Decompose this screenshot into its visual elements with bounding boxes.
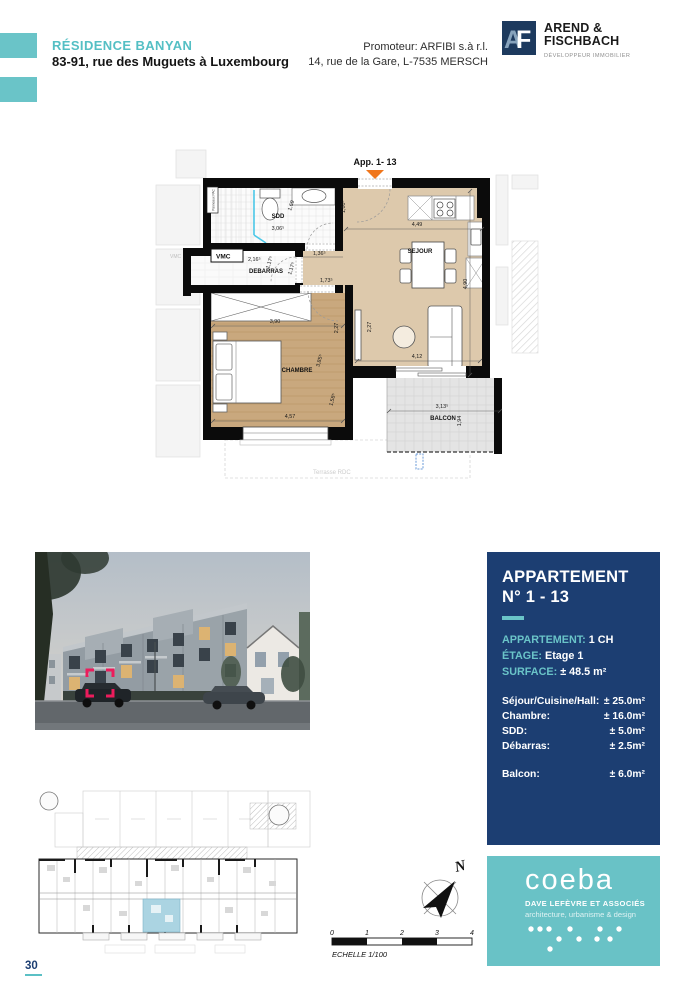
svg-text:0: 0 [330,930,334,937]
apartment-floorplan: VMC Terrasse RDC [150,145,540,510]
promoter-info: Promoteur: ARFIBI s.à r.l. 14, rue de la… [308,40,488,70]
panel-title-line2: N° 1 - 13 [502,587,645,607]
vmc-label: VMC [216,254,231,261]
dim-balc-w: 3,13⁵ [436,404,449,410]
drain-symbol [416,454,423,469]
pac-label: Panneaux PAC [212,189,216,211]
scale-bar: 0 1 2 3 4 ECHELLE 1/100 [326,926,476,964]
developer-name-line1: AREND & [544,22,630,35]
dim-ward-w: 3,90 [270,319,281,325]
neighbor-vmc-label: VMC [170,254,182,260]
area-row: Débarras:± 2.5m² [502,739,645,754]
building-photo [35,552,310,730]
dim-ch-w: 4,57 [285,414,296,420]
teal-accent-square [0,77,37,102]
north-label: N [452,857,468,876]
area-row: SDD:± 5.0m² [502,724,645,739]
af-monogram-icon: A F [502,21,536,55]
sejour-label: SEJOUR [408,249,433,255]
floor-line: ÉTAGE: Etage 1 [502,648,645,664]
developer-logo: A F [502,21,536,55]
dim-deb-w: 2,16⁵ [248,257,261,263]
highlighted-unit [143,899,180,932]
svg-text:1: 1 [365,930,369,937]
chambre-label: CHAMBRE [282,368,313,374]
page-number-underline [25,974,42,976]
project-title: RÉSIDENCE BANYAN [52,38,289,54]
architect-logo: coeba DAVE LEFÈVRE ET ASSOCIÉS architect… [487,856,660,966]
dim-hall-w1: 1,36⁵ [313,251,326,257]
architect-subtitle: DAVE LEFÈVRE ET ASSOCIÉS [525,899,660,908]
tree-symbol [269,805,289,825]
apartment-number-label: App. 1- 13 [353,157,396,167]
dim-sej-w: 4,12 [412,354,423,360]
architect-tagline: architecture, urbanisme & design [525,910,660,919]
promoter-line2: 14, rue de la Gare, L-7535 MERSCH [308,55,488,70]
scale-label: ECHELLE 1/100 [332,950,388,959]
surface-line: SURFACE: ± 48.5 m² [502,664,645,680]
apartment-info-panel: APPARTEMENT N° 1 - 13 APPARTEMENT: 1 CH … [487,552,660,845]
dim-ch-d2: 2,27 [367,322,373,333]
panel-title-line1: APPARTEMENT [502,567,645,587]
debarras-label: DEBARRAS [249,269,283,275]
brochure-page: RÉSIDENCE BANYAN 83-91, rue des Muguets … [0,0,700,1004]
dim-hall-w2: 1,73⁵ [320,278,333,284]
project-address: 83-91, rue des Muguets à Luxembourg [52,54,289,70]
dim-balc-h: 1,94 [457,416,463,427]
promoter-line1: Promoteur: ARFIBI s.à r.l. [308,40,488,55]
svg-text:2: 2 [399,930,404,937]
svg-text:F: F [516,26,531,54]
site-plan [25,785,320,965]
dim-entry-h: 1,80⁵ [341,200,347,213]
developer-tagline: DÉVELOPPEUR IMMOBILIER [544,50,630,63]
dim-ch-d1: 2,27 [334,323,340,334]
tree-symbol [40,792,58,810]
dim-sdd-w: 3,06⁵ [272,226,285,232]
sdd-label: SDD [272,214,285,220]
area-row: Séjour/Cuisine/Hall:± 25.0m² [502,694,645,709]
developer-name-line2: FISCHBACH [544,35,630,48]
developer-name: AREND & FISCHBACH DÉVELOPPEUR IMMOBILIER [544,22,630,63]
svg-text:3: 3 [435,930,439,937]
teal-dash [502,616,524,620]
dim-kitchen-w: 4,49 [412,222,423,228]
apartment-type-line: APPARTEMENT: 1 CH [502,632,645,648]
braille-dots-icon [527,925,662,953]
terrace-label: Terrasse RDC [313,470,351,476]
balcon-label: BALCON [430,416,456,422]
area-table: Séjour/Cuisine/Hall:± 25.0m² Chambre:± 1… [502,694,645,782]
svg-text:4: 4 [470,930,474,937]
dim-sejour-h: 4,90 [463,279,469,290]
architect-name: coeba [525,864,660,896]
area-row: Chambre:± 16.0m² [502,709,645,724]
project-header: RÉSIDENCE BANYAN 83-91, rue des Muguets … [52,38,289,70]
page-number: 30 [25,960,42,976]
balcony-row: Balcon:± 6.0m² [502,767,645,782]
teal-accent-square [0,33,37,58]
